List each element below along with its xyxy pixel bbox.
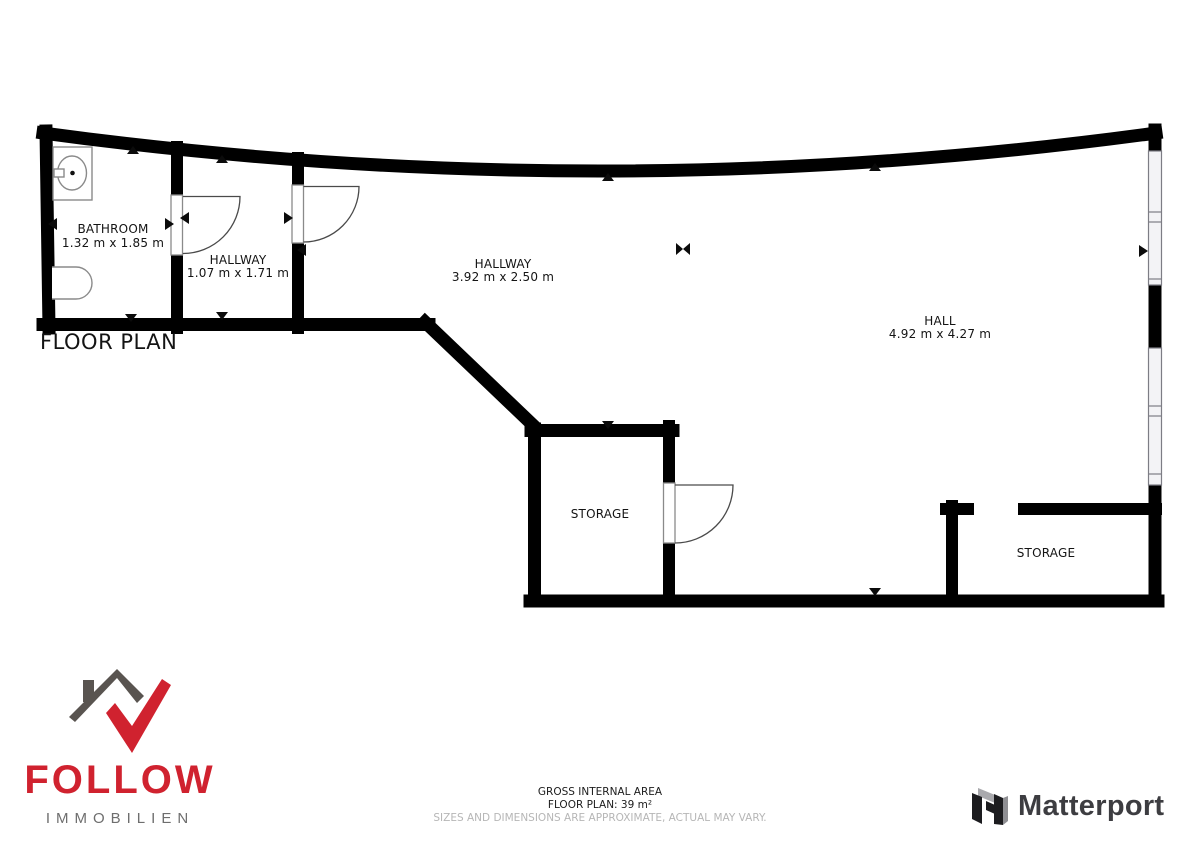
door-storage [664, 483, 734, 543]
matterport-logo: Matterport [970, 786, 1164, 826]
dimension-arrows [48, 146, 1148, 596]
door-bathroom [171, 195, 240, 255]
toilet-fixture [52, 267, 92, 299]
hallway-large-dims: 3.92 m x 2.50 m [452, 270, 554, 284]
matterport-logo-icon [970, 786, 1010, 826]
hallway-small-dims: 1.07 m x 1.71 m [187, 266, 289, 280]
door-hallway [292, 185, 359, 243]
outer-walls [43, 130, 1158, 601]
floor-plan-svg: BATHROOM 1.32 m x 1.85 m HALLWAY 1.07 m … [0, 0, 1200, 630]
bathroom-dims: 1.32 m x 1.85 m [62, 236, 164, 250]
hallway-large-label: HALLWAY [475, 257, 532, 271]
storage-left-label: STORAGE [571, 507, 630, 521]
hall-dims: 4.92 m x 4.27 m [889, 327, 991, 341]
matterport-label: Matterport [1018, 790, 1164, 823]
bathroom-label: BATHROOM [77, 222, 148, 236]
house-check-logo-icon [20, 656, 220, 756]
sink-fixture [53, 147, 92, 200]
storage-right-label: STORAGE [1017, 546, 1076, 560]
hall-label: HALL [924, 314, 956, 328]
room-labels: BATHROOM 1.32 m x 1.85 m HALLWAY 1.07 m … [62, 222, 1075, 560]
page-root: { "plan": { "title": "FLOOR PLAN", "room… [0, 0, 1200, 849]
hallway-small-label: HALLWAY [210, 253, 267, 267]
floor-plan-title: FLOOR PLAN [40, 330, 177, 354]
